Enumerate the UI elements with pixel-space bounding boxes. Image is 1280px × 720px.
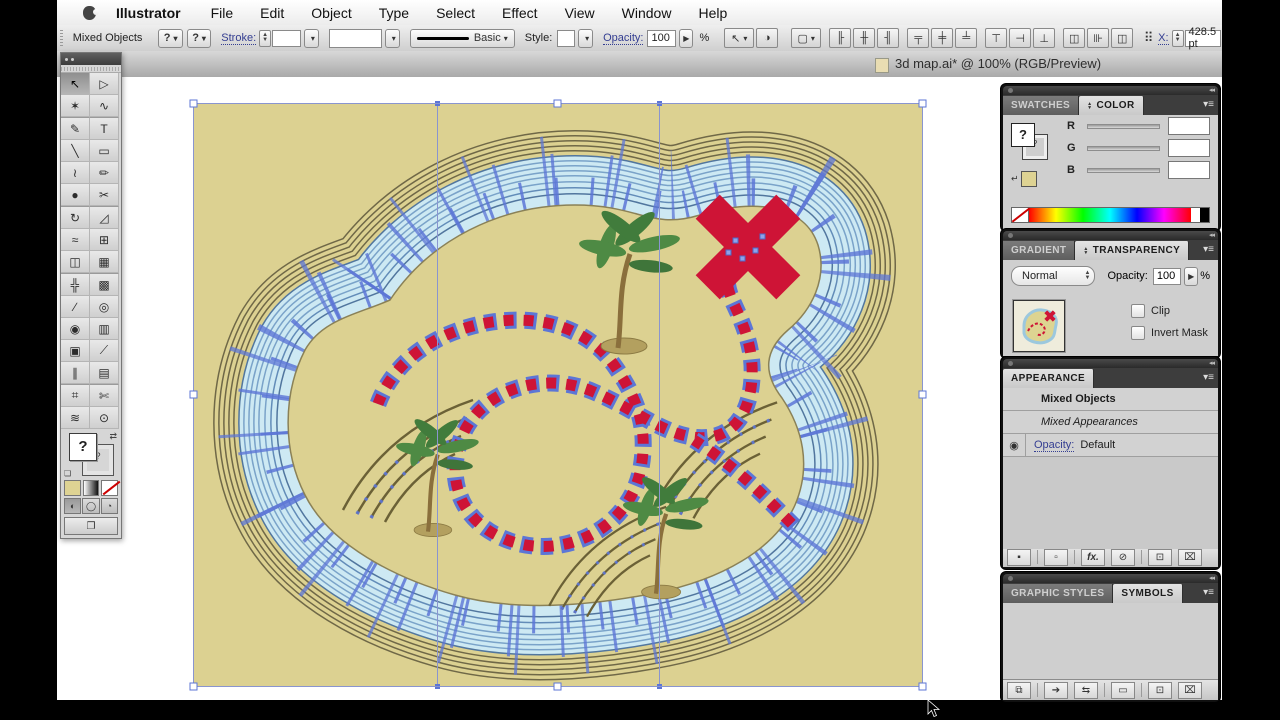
- color-button[interactable]: [64, 480, 81, 496]
- collapse-icon[interactable]: ◂◂: [1209, 231, 1214, 239]
- menu-effect[interactable]: Effect: [502, 5, 538, 21]
- symbols-list-area[interactable]: [1003, 603, 1218, 679]
- panel-strip[interactable]: ◂◂: [1003, 86, 1218, 95]
- tab-gradient[interactable]: GRADIENT: [1003, 241, 1075, 260]
- tab-appearance[interactable]: APPEARANCE: [1003, 369, 1094, 388]
- draw-inside-mode[interactable]: ◔: [101, 498, 118, 514]
- mouse-cursor: [927, 700, 941, 718]
- add-new-stroke-button[interactable]: ▪: [1007, 549, 1031, 566]
- panel-close-icon[interactable]: [1008, 361, 1013, 366]
- panel-menu-icon[interactable]: ▾≡: [1203, 372, 1214, 383]
- menu-illustrator[interactable]: Illustrator: [116, 5, 181, 21]
- clip-label: Clip: [1151, 305, 1170, 317]
- red-slider[interactable]: [1087, 124, 1160, 129]
- tool-direct-selection[interactable]: ▷: [90, 73, 119, 95]
- tab-symbols[interactable]: SYMBOLS: [1113, 584, 1182, 603]
- red-label: R: [1067, 120, 1079, 132]
- tool-type[interactable]: T: [90, 117, 119, 140]
- tools-panel-grip[interactable]: [61, 65, 121, 73]
- menu-type[interactable]: Type: [379, 5, 409, 21]
- fill-stroke-proxy[interactable]: ? ? ⇄ ❏: [61, 429, 121, 479]
- blue-value-field[interactable]: [1168, 161, 1210, 179]
- appearance-panel-group: ◂◂ APPEARANCE ▾≡ Mixed Objects Mixed App…: [1001, 357, 1220, 569]
- x-position-link[interactable]: X:: [1158, 32, 1168, 45]
- visibility-eye-icon[interactable]: ◉: [1003, 434, 1026, 456]
- collapse-icon[interactable]: ◂◂: [1209, 359, 1214, 367]
- invert-mask-checkbox-row[interactable]: Invert Mask: [1131, 326, 1208, 340]
- tool-crop[interactable]: ⌗: [61, 384, 90, 407]
- symbols-bottom-bar: ⧉ ➔ ⇆ ▭ ⊡ ⌧: [1003, 679, 1218, 700]
- opacity-value: Default: [1080, 439, 1115, 451]
- green-value-field[interactable]: [1168, 139, 1210, 157]
- tool-selection[interactable]: ↖: [61, 73, 90, 95]
- menu-select[interactable]: Select: [436, 5, 475, 21]
- panel-close-icon[interactable]: [1008, 88, 1013, 93]
- panel-strip[interactable]: ◂◂: [1003, 574, 1218, 583]
- object-thumbnail[interactable]: [1013, 300, 1065, 352]
- tab-color[interactable]: ▲▼COLOR: [1079, 96, 1143, 115]
- tool-scale[interactable]: ◿: [90, 206, 119, 229]
- tool-shape-builder[interactable]: ◫: [61, 251, 90, 273]
- stroke-unknown: ?: [192, 32, 199, 44]
- document-title-bar[interactable]: 3d map.ai* @ 100% (RGB/Preview): [57, 51, 1222, 78]
- align-vertical-top-button[interactable]: ╤: [907, 28, 929, 48]
- invert-mask-label: Invert Mask: [1151, 327, 1208, 339]
- align-to-selection-button[interactable]: ▢▾: [791, 28, 821, 48]
- tab-transparency[interactable]: ▲▼TRANSPARENCY: [1075, 241, 1189, 260]
- opacity-link[interactable]: Opacity:: [1034, 439, 1074, 452]
- tool-hand[interactable]: ≋: [61, 407, 90, 429]
- tool-rotate[interactable]: ↻: [61, 206, 90, 229]
- menu-edit[interactable]: Edit: [260, 5, 284, 21]
- distribute-right-button[interactable]: ◫: [1111, 28, 1133, 48]
- stroke-color-button[interactable]: ?▾: [187, 29, 211, 48]
- tool-magic-wand[interactable]: ✶: [61, 95, 90, 117]
- color-fill-stroke-proxy[interactable]: ? ?: [1011, 123, 1051, 163]
- panel-strip[interactable]: ◂◂: [1003, 359, 1218, 368]
- tool-pen[interactable]: ✎: [61, 117, 90, 140]
- dropdown-icon: ▾: [202, 34, 206, 43]
- clear-appearance-button[interactable]: ⊘: [1111, 549, 1135, 566]
- x-position-stepper[interactable]: ▲▼: [1172, 30, 1184, 47]
- invert-mask-checkbox[interactable]: [1131, 326, 1145, 340]
- tool-perspective-grid[interactable]: ▦: [90, 251, 119, 273]
- distribute-left-button[interactable]: ◫: [1063, 28, 1085, 48]
- opacity-field[interactable]: 100: [647, 30, 676, 47]
- fill-proxy[interactable]: ?: [69, 433, 97, 461]
- recolor-artwork-button[interactable]: ◑: [756, 28, 778, 48]
- style-field[interactable]: [557, 30, 575, 47]
- symbols-panel-group: ◂◂ GRAPHIC STYLES SYMBOLS ▾≡ ⧉ ➔ ⇆ ▭ ⊡ ⌧: [1001, 572, 1220, 702]
- tool-rectangle[interactable]: ▭: [90, 140, 119, 162]
- menu-object[interactable]: Object: [311, 5, 351, 21]
- menu-bar: Illustrator File Edit Object Type Select…: [57, 0, 1222, 26]
- opacity-link[interactable]: Opacity:: [603, 32, 643, 45]
- tool-scissors[interactable]: ✂: [90, 184, 119, 206]
- menu-window[interactable]: Window: [622, 5, 672, 21]
- x-position-field[interactable]: 428.5 pt: [1185, 30, 1221, 47]
- red-channel-row: R: [1059, 115, 1218, 137]
- appearance-bottom-bar: ▪ ▫ fx. ⊘ ⊡ ⌧: [1003, 546, 1218, 567]
- select-similar-button[interactable]: ↖▾: [724, 28, 754, 48]
- break-link-button[interactable]: ⇆: [1074, 682, 1098, 699]
- transparency-opacity-flyout[interactable]: ▶: [1184, 267, 1198, 286]
- stroke-link[interactable]: Stroke:: [221, 32, 256, 45]
- tool-graph[interactable]: ▥: [90, 318, 119, 340]
- green-slider[interactable]: [1087, 146, 1160, 151]
- tool-knife[interactable]: ✄: [90, 384, 119, 407]
- stroke-swatch-mini[interactable]: ↵: [1011, 171, 1037, 187]
- blue-slider[interactable]: [1087, 168, 1160, 173]
- width-profile-dropdown[interactable]: ▾: [385, 29, 400, 48]
- brush-definition[interactable]: Basic ▾: [410, 29, 515, 48]
- appearance-row-opacity[interactable]: ◉ Opacity: Default: [1003, 434, 1218, 457]
- tool-zoom[interactable]: ⊙: [90, 407, 119, 429]
- tool-width[interactable]: ∥: [61, 362, 90, 384]
- tool-line-segment[interactable]: ╲: [61, 140, 90, 162]
- blue-channel-row: B: [1059, 159, 1218, 181]
- collapse-icon[interactable]: ◂◂: [1209, 86, 1214, 94]
- clip-checkbox[interactable]: [1131, 304, 1145, 318]
- swap-fill-stroke-icon[interactable]: ⇄: [109, 431, 117, 442]
- none-swatch[interactable]: [1012, 208, 1029, 222]
- menu-help[interactable]: Help: [698, 5, 727, 21]
- delete-item-button[interactable]: ⌧: [1178, 549, 1202, 566]
- tool-blob-brush[interactable]: ●: [61, 184, 90, 206]
- draw-behind-mode[interactable]: ◯: [82, 498, 99, 514]
- tool-blend[interactable]: ◎: [90, 296, 119, 318]
- blend-mode-dropdown[interactable]: Normal ▲▼: [1011, 266, 1095, 286]
- opacity-label: Opacity:: [1107, 270, 1147, 282]
- appearance-row-mixed-objects[interactable]: Mixed Objects: [1003, 388, 1218, 411]
- default-fill-stroke-icon[interactable]: ❏: [64, 469, 71, 478]
- screen-mode-button[interactable]: ❐: [64, 517, 118, 535]
- panel-menu-icon[interactable]: ▾≡: [1203, 587, 1214, 598]
- percent-label: %: [1200, 270, 1210, 282]
- red-value-field[interactable]: [1168, 117, 1210, 135]
- symbol-options-button[interactable]: ▭: [1111, 682, 1135, 699]
- style-dropdown[interactable]: ▾: [578, 29, 593, 48]
- panel-strip[interactable]: ◂◂: [1003, 231, 1218, 240]
- reference-point-grid[interactable]: ⠿: [1143, 29, 1154, 47]
- variable-width-profile[interactable]: [329, 29, 382, 48]
- align-horizontal-left-button[interactable]: ╟: [829, 28, 851, 48]
- tool-paintbrush[interactable]: ≀: [61, 162, 90, 184]
- menu-file[interactable]: File: [211, 5, 234, 21]
- tool-symbol-sprayer[interactable]: ◉: [61, 318, 90, 340]
- align-horizontal-center-button[interactable]: ╫: [853, 28, 875, 48]
- tools-panel-header[interactable]: [61, 53, 121, 65]
- document-title: 3d map.ai* @ 100% (RGB/Preview): [895, 56, 1101, 71]
- duplicate-item-button[interactable]: ⊡: [1148, 549, 1172, 566]
- green-label: G: [1067, 142, 1079, 154]
- panel-close-icon[interactable]: [1008, 233, 1013, 238]
- tool-pencil[interactable]: ✏: [90, 162, 119, 184]
- distribute-middle-button[interactable]: ⊪: [1087, 28, 1109, 48]
- style-label: Style:: [525, 32, 553, 44]
- control-bar-grip[interactable]: [60, 30, 63, 46]
- align-vertical-center-button[interactable]: ╪: [931, 28, 953, 48]
- tab-swatches[interactable]: SWATCHES: [1003, 96, 1079, 115]
- menu-view[interactable]: View: [565, 5, 595, 21]
- panel-close-icon[interactable]: [1008, 576, 1013, 581]
- appearance-row-mixed-appearances[interactable]: Mixed Appearances: [1003, 411, 1218, 434]
- tool-free-transform[interactable]: ⊞: [90, 229, 119, 251]
- opacity-percent: %: [699, 32, 709, 44]
- opacity-flyout[interactable]: ▶: [679, 29, 693, 48]
- tool-gradient[interactable]: ▩: [90, 273, 119, 296]
- document-icon: [875, 58, 889, 73]
- color-spectrum-ramp[interactable]: [1011, 207, 1210, 223]
- new-symbol-button[interactable]: ⊡: [1148, 682, 1172, 699]
- tool-slice[interactable]: ⟋: [90, 340, 119, 362]
- blue-label: B: [1067, 164, 1079, 176]
- tool-artboard[interactable]: ▣: [61, 340, 90, 362]
- align-vertical-bottom-button[interactable]: ╧: [955, 28, 977, 48]
- tab-graphic-styles[interactable]: GRAPHIC STYLES: [1003, 584, 1113, 603]
- brush-stroke-preview: [417, 37, 469, 40]
- symbol-libraries-button[interactable]: ⧉: [1007, 682, 1031, 699]
- tool-ruler[interactable]: ▤: [90, 362, 119, 384]
- fill-unknown: ?: [164, 32, 171, 44]
- control-bar: Mixed Objects ?▾ ?▾ Stroke: ▲▼ ▾ ▾ Basic…: [57, 25, 1222, 52]
- tool-lasso[interactable]: ∿: [90, 95, 119, 117]
- delete-symbol-button[interactable]: ⌧: [1178, 682, 1202, 699]
- stroke-weight-field[interactable]: [272, 30, 301, 47]
- selection-type-label: Mixed Objects: [73, 32, 143, 44]
- tool-eyedropper[interactable]: ∕: [61, 296, 90, 318]
- place-symbol-button[interactable]: ➔: [1044, 682, 1068, 699]
- panel-menu-icon[interactable]: ▾≡: [1203, 99, 1214, 110]
- none-button[interactable]: [101, 480, 118, 496]
- brush-name: Basic: [474, 32, 501, 44]
- collapse-icon[interactable]: ◂◂: [1209, 574, 1214, 582]
- gradient-button[interactable]: [83, 480, 100, 496]
- green-channel-row: G: [1059, 137, 1218, 159]
- stroke-weight-stepper[interactable]: ▲▼: [259, 30, 271, 47]
- stroke-weight-dropdown[interactable]: ▾: [304, 29, 319, 48]
- tool-warp[interactable]: ≈: [61, 229, 90, 251]
- add-effect-button[interactable]: fx.: [1081, 549, 1105, 566]
- transparency-panel-group: ◂◂ GRADIENT ▲▼TRANSPARENCY ▾≡ Normal ▲▼ …: [1001, 229, 1220, 358]
- tool-mesh[interactable]: ╬: [61, 273, 90, 296]
- dropdown-icon: ▾: [174, 34, 178, 43]
- apple-menu-icon[interactable]: [83, 6, 96, 20]
- color-panel-group: ◂◂ SWATCHES ▲▼COLOR ▾≡ ? ? R G B: [1001, 84, 1220, 231]
- distribute-bottom-button[interactable]: ⊥: [1033, 28, 1055, 48]
- distribute-top-button[interactable]: ⊤: [985, 28, 1007, 48]
- clip-checkbox-row[interactable]: Clip: [1131, 304, 1170, 318]
- add-new-fill-button[interactable]: ▫: [1044, 549, 1068, 566]
- draw-normal-mode[interactable]: ◐: [64, 498, 81, 514]
- panel-menu-icon[interactable]: ▾≡: [1203, 244, 1214, 255]
- tools-panel: ↖ ▷ ✶ ∿ ✎ T ╲ ▭ ≀ ✏ ● ✂ ↻ ◿ ≈ ⊞ ◫ ▦ ╬ ▩ …: [60, 52, 122, 539]
- distribute-center-button[interactable]: ⊣: [1009, 28, 1031, 48]
- fill-color-button[interactable]: ?▾: [158, 29, 182, 48]
- transparency-opacity-field[interactable]: 100: [1153, 268, 1181, 285]
- align-horizontal-right-button[interactable]: ╢: [877, 28, 899, 48]
